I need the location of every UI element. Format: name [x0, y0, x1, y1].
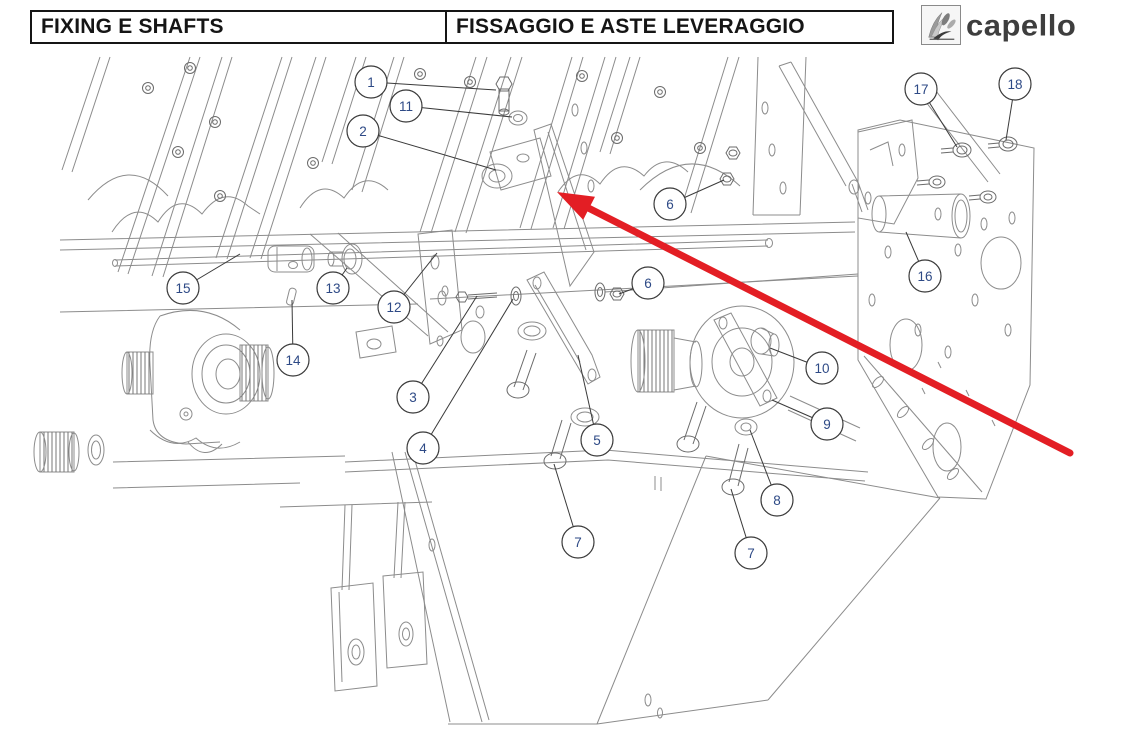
main-shaft [113, 239, 859, 306]
callout-number: 11 [399, 99, 413, 114]
callout-10: 10 [770, 348, 838, 384]
parts-catalog-page: FIXING E SHAFTS FISSAGGIO E ASTE LEVERAG… [0, 0, 1129, 733]
callout-number: 4 [419, 441, 427, 456]
callout-14: 14 [277, 300, 309, 376]
callout-number: 1 [367, 75, 375, 90]
rail-bolts [143, 63, 706, 202]
flange-nut [726, 147, 740, 159]
pointer-arrow [557, 192, 1070, 453]
callout-17: 17 [905, 73, 957, 147]
spacer-bushing [751, 328, 771, 354]
diagram-canvas: 11126617181615131214345109877 [0, 0, 1129, 733]
callout-number: 7 [574, 535, 582, 550]
callout-number: 15 [175, 281, 190, 296]
callout-number: 9 [823, 417, 831, 432]
callout-1: 1 [355, 66, 496, 98]
callout-number: 12 [386, 300, 401, 315]
callout-7: 7 [554, 464, 594, 558]
callout-number: 3 [409, 390, 417, 405]
left-gearbox [34, 310, 274, 472]
callout-number: 18 [1007, 77, 1022, 92]
hopper [331, 450, 940, 724]
callout-number: 17 [913, 82, 928, 97]
side-plate [858, 78, 1034, 499]
callout-number: 7 [747, 546, 755, 561]
callout-number: 14 [285, 353, 301, 368]
roll-pin [286, 288, 297, 306]
callout-6: 6 [619, 267, 664, 299]
callout-number: 2 [359, 124, 367, 139]
callouts-layer: 11126617181615131214345109877 [167, 66, 1031, 569]
callout-number: 10 [814, 361, 829, 376]
callout-5: 5 [578, 355, 613, 456]
callout-number: 5 [593, 433, 601, 448]
callout-9: 9 [772, 400, 843, 440]
callout-13: 13 [317, 268, 349, 304]
hanger-bracket [331, 583, 377, 691]
callout-2: 2 [347, 115, 496, 170]
callout-number: 13 [325, 281, 340, 296]
machine-drawing [34, 57, 1034, 724]
callout-15: 15 [167, 254, 240, 304]
washer [735, 419, 757, 435]
frame-beams [60, 222, 868, 507]
callout-18: 18 [999, 68, 1031, 140]
callout-number: 6 [666, 197, 674, 212]
washer [509, 111, 527, 125]
right-gearbox [631, 306, 860, 495]
spacer-cylinder [879, 194, 961, 238]
callout-number: 8 [773, 493, 781, 508]
callout-number: 6 [644, 276, 652, 291]
callout-11: 11 [390, 90, 512, 122]
lever-plate-right [714, 313, 777, 406]
callout-6: 6 [654, 180, 724, 220]
row-units [62, 57, 868, 277]
callout-16: 16 [906, 232, 941, 292]
callout-number: 16 [917, 269, 932, 284]
flange-nut [610, 288, 624, 300]
callout-12: 12 [378, 253, 437, 323]
